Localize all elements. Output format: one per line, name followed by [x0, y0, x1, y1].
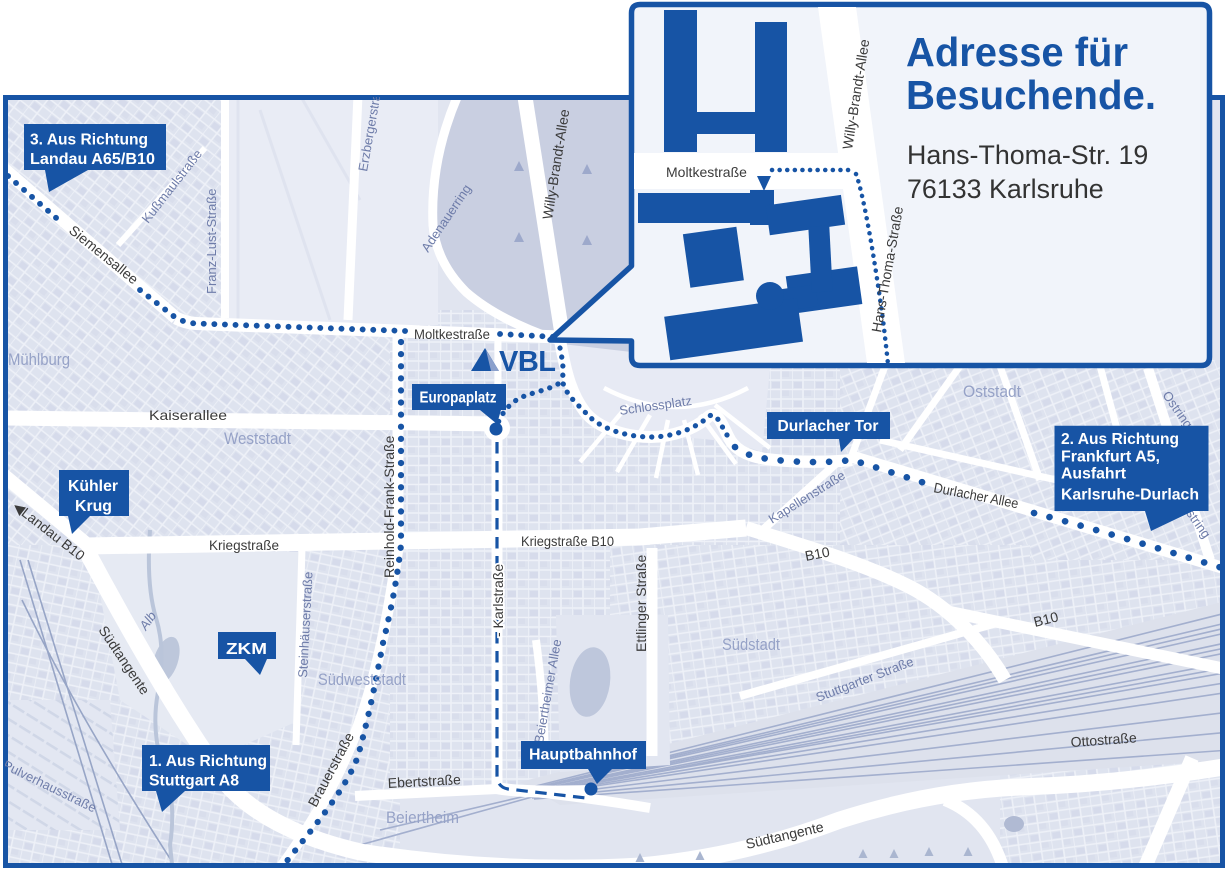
svg-text:Mühlburg: Mühlburg — [8, 350, 70, 369]
svg-text:Hans-Thoma-Str. 19: Hans-Thoma-Str. 19 — [907, 140, 1148, 170]
svg-text:Frankfurt A5,: Frankfurt A5, — [1061, 449, 1160, 466]
svg-text:Moltkestraße: Moltkestraße — [666, 164, 747, 180]
svg-text:Kriegstraße B10: Kriegstraße B10 — [521, 533, 614, 549]
svg-text:Kriegstraße: Kriegstraße — [209, 537, 279, 553]
svg-text:Ettlinger Straße: Ettlinger Straße — [633, 555, 649, 652]
svg-text:3. Aus Richtung: 3. Aus Richtung — [30, 132, 148, 149]
svg-text:Kaiserallee: Kaiserallee — [149, 407, 227, 423]
svg-text:Ausfahrt: Ausfahrt — [1061, 466, 1126, 483]
svg-text:Landau A65/B10: Landau A65/B10 — [30, 151, 155, 168]
svg-text:Kühler: Kühler — [68, 478, 118, 495]
svg-text:Weststadt: Weststadt — [224, 429, 291, 448]
svg-text:76133 Karlsruhe: 76133 Karlsruhe — [907, 174, 1104, 204]
svg-text:Reinhold-Frank-Straße: Reinhold-Frank-Straße — [381, 435, 397, 578]
svg-text:VBL: VBL — [499, 346, 556, 378]
svg-text:Stuttgart A8: Stuttgart A8 — [149, 773, 239, 790]
svg-text:Moltkestraße: Moltkestraße — [414, 326, 490, 342]
svg-text:Durlacher Tor: Durlacher Tor — [778, 418, 879, 435]
svg-text:ZKM: ZKM — [226, 641, 267, 658]
svg-text:Oststadt: Oststadt — [963, 382, 1021, 401]
svg-text:Hauptbahnhof: Hauptbahnhof — [529, 747, 638, 764]
svg-text:Besuchende.: Besuchende. — [906, 72, 1156, 118]
svg-text:Beiertheim: Beiertheim — [386, 808, 459, 827]
svg-text:Südstadt: Südstadt — [722, 635, 780, 654]
svg-text:2. Aus Richtung: 2. Aus Richtung — [1061, 431, 1179, 448]
svg-text:Europaplatz: Europaplatz — [420, 390, 497, 407]
svg-text:Krug: Krug — [75, 498, 112, 515]
svg-text:Karlsruhe-Durlach: Karlsruhe-Durlach — [1061, 487, 1199, 504]
svg-text:Südweststadt: Südweststadt — [318, 670, 406, 689]
svg-text:Adresse für: Adresse für — [906, 29, 1128, 75]
svg-text:1. Aus Richtung: 1. Aus Richtung — [149, 753, 267, 770]
svg-text:- Karlstraße: - Karlstraße — [490, 564, 506, 637]
svg-text:Franz-Lust-Straße: Franz-Lust-Straße — [204, 189, 219, 294]
